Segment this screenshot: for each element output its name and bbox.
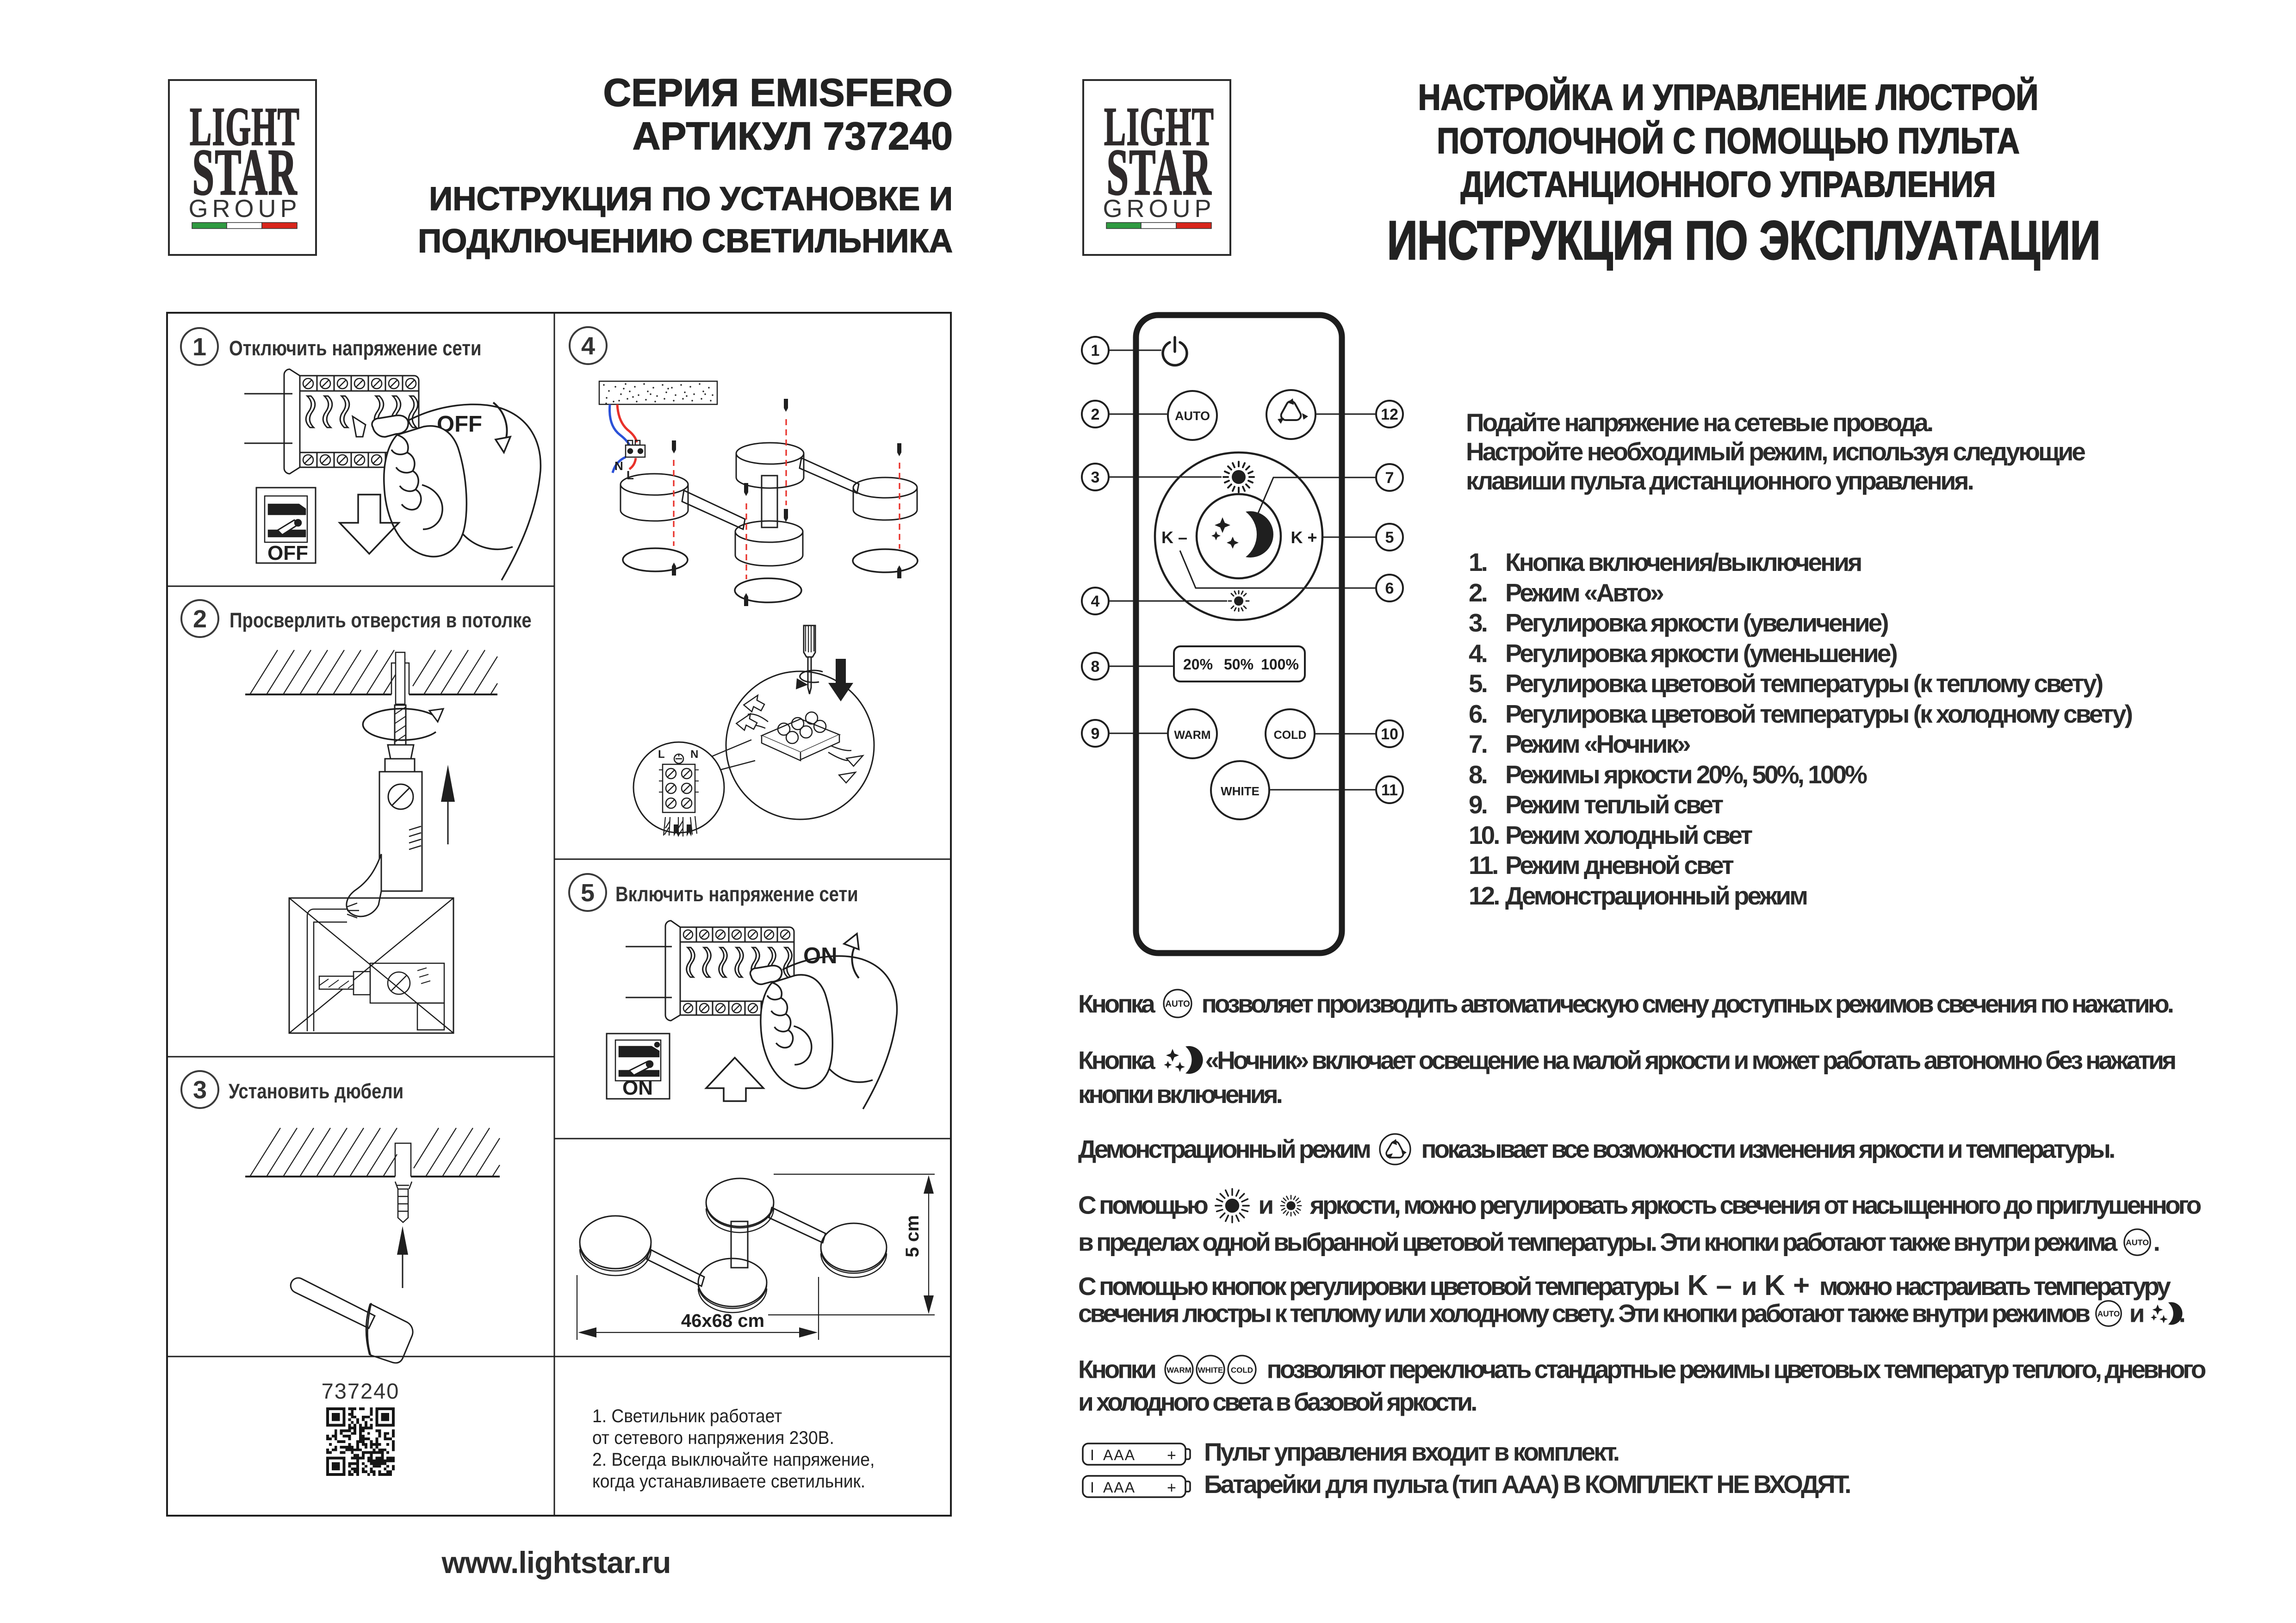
svg-text:100%: 100% — [1261, 656, 1299, 673]
svg-text:L: L — [627, 468, 634, 482]
svg-text:WHITE: WHITE — [1198, 1366, 1223, 1375]
svg-text:7: 7 — [1385, 469, 1394, 487]
svg-text:11: 11 — [1381, 781, 1398, 799]
svg-text:WARM: WARM — [1167, 1366, 1191, 1375]
svg-text:L: L — [658, 748, 665, 761]
svg-text:AUTO: AUTO — [1166, 999, 1190, 1009]
svg-text:2: 2 — [1091, 406, 1100, 423]
svg-text:9: 9 — [1091, 725, 1100, 743]
svg-text:I: I — [1090, 1447, 1094, 1463]
svg-text:OFF: OFF — [267, 542, 308, 564]
svg-text:WARM: WARM — [1174, 729, 1210, 742]
svg-text:20%: 20% — [1183, 656, 1213, 673]
svg-text:5: 5 — [1385, 529, 1394, 546]
svg-text:ON: ON — [622, 1077, 653, 1099]
svg-text:N: N — [614, 459, 623, 473]
svg-text:8: 8 — [1091, 658, 1100, 675]
svg-text:46x68 cm: 46x68 cm — [681, 1311, 764, 1331]
svg-text:6: 6 — [1385, 580, 1394, 597]
svg-text:+: + — [1167, 1447, 1176, 1464]
svg-text:1: 1 — [1091, 342, 1100, 359]
svg-text:I: I — [1090, 1479, 1094, 1496]
svg-text:AUTO: AUTO — [1175, 409, 1210, 423]
svg-text:AAA: AAA — [1103, 1479, 1136, 1496]
svg-text:AUTO: AUTO — [2097, 1309, 2120, 1318]
svg-text:AAA: AAA — [1103, 1447, 1136, 1463]
svg-text:COLD: COLD — [1274, 729, 1307, 742]
svg-text:5 cm: 5 cm — [902, 1215, 923, 1257]
svg-text:K –: K – — [1161, 528, 1187, 547]
svg-text:WHITE: WHITE — [1221, 784, 1260, 798]
svg-text:10: 10 — [1381, 725, 1398, 743]
svg-text:3: 3 — [1091, 469, 1100, 486]
svg-text:4: 4 — [1091, 593, 1100, 610]
svg-text:+: + — [1167, 1479, 1176, 1497]
svg-text:N: N — [690, 748, 698, 761]
svg-text:12: 12 — [1381, 406, 1398, 423]
svg-text:COLD: COLD — [1231, 1366, 1253, 1375]
svg-text:50%: 50% — [1224, 656, 1253, 673]
svg-text:K +: K + — [1291, 528, 1317, 547]
svg-text:AUTO: AUTO — [2125, 1238, 2148, 1247]
svg-text:GROUP: GROUP — [1103, 195, 1215, 223]
